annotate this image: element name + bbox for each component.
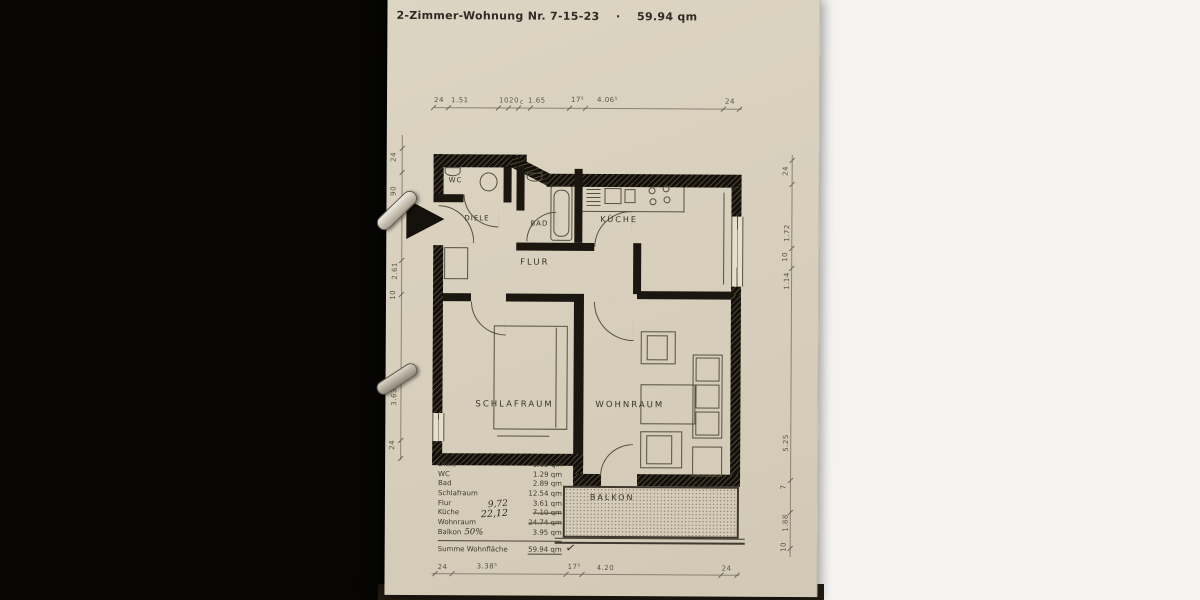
row-value: 3.95 qm bbox=[533, 528, 562, 536]
dim-label: 1.72 bbox=[783, 224, 791, 242]
dim-label: 10 bbox=[389, 290, 397, 300]
dim-tick bbox=[398, 456, 404, 462]
photo-scene: 2-Zimmer-Wohnung Nr. 7-15-23 · 59.94 qm bbox=[0, 0, 1200, 600]
row-value-corrected: 7.10 qm bbox=[533, 509, 562, 517]
dark-background bbox=[0, 0, 389, 600]
row-value: 12.54 qm bbox=[528, 490, 562, 498]
dim-label: 24 bbox=[725, 98, 735, 106]
dim-label: 24 bbox=[438, 563, 448, 571]
row-value: 3.61 qm bbox=[533, 499, 562, 507]
dim-label: 17⁵ bbox=[571, 96, 584, 104]
dim-label: 3.38⁵ bbox=[477, 562, 498, 570]
dimension-line-right bbox=[790, 155, 793, 557]
dim-label: 1.14 bbox=[783, 272, 791, 290]
floor-plan-sheet: 2-Zimmer-Wohnung Nr. 7-15-23 · 59.94 qm bbox=[384, 0, 820, 597]
dim-label: 5.25 bbox=[782, 434, 790, 452]
table-row: WC 1.29 qm bbox=[438, 469, 562, 479]
dim-label: 1.51 bbox=[451, 96, 469, 104]
handwritten-percentage: 50% bbox=[464, 527, 483, 537]
table-row: Bad 2.89 qm bbox=[438, 479, 562, 489]
dim-label: 4.20 bbox=[597, 564, 615, 572]
table-total-row: Summe Wohnfläche 59.94 qm bbox=[438, 540, 562, 556]
dim-label: 24 bbox=[390, 152, 398, 162]
dim-label: 1.65 bbox=[528, 97, 546, 105]
dim-label: 2.61 bbox=[391, 262, 399, 280]
dim-label: 24 bbox=[782, 166, 790, 176]
row-value: 3.82 qm bbox=[533, 460, 562, 468]
row-name: Diele bbox=[438, 460, 456, 468]
dimension-line-top bbox=[434, 107, 742, 110]
dim-label: 24 bbox=[434, 96, 444, 104]
row-name: WC bbox=[438, 470, 450, 478]
total-label: Summe Wohnfläche bbox=[438, 545, 508, 553]
row-name: Wohnraum bbox=[438, 518, 476, 526]
row-name: Bad bbox=[438, 479, 452, 487]
row-value-corrected: 24.74 qm bbox=[528, 519, 562, 527]
dim-label: 90 bbox=[389, 186, 397, 196]
row-value: 1.29 qm bbox=[533, 470, 562, 478]
dim-label: 24 bbox=[388, 440, 396, 450]
dimension-line-bottom bbox=[432, 573, 740, 576]
table-row: Schlafraum 12.54 qm bbox=[438, 488, 562, 498]
dimension-line-left bbox=[400, 135, 403, 460]
dim-label: 20 bbox=[509, 97, 519, 105]
dim-label: 17⁵ bbox=[568, 563, 581, 571]
row-name: Schlafraum bbox=[438, 489, 478, 497]
dim-label: 10 bbox=[499, 96, 509, 104]
row-name-text: Balkon bbox=[438, 528, 462, 536]
row-name: Flur bbox=[438, 499, 451, 507]
row-value: 2.89 qm bbox=[533, 480, 562, 488]
row-name: Balkon50% bbox=[438, 527, 484, 537]
row-name: Küche bbox=[438, 508, 459, 516]
dim-label: 7 bbox=[779, 484, 787, 489]
dim-label: 4.06⁵ bbox=[597, 96, 618, 104]
handwritten-correction-wohnraum: 22,12 bbox=[481, 508, 509, 521]
table-row: Balkon50% 3.95 qm bbox=[438, 527, 562, 537]
dim-label: 10 bbox=[781, 252, 789, 262]
table-row: Diele 3.82 qm bbox=[438, 459, 562, 469]
dim-label: 1.88 bbox=[782, 514, 790, 532]
total-value: 59.94 qm bbox=[528, 545, 562, 554]
